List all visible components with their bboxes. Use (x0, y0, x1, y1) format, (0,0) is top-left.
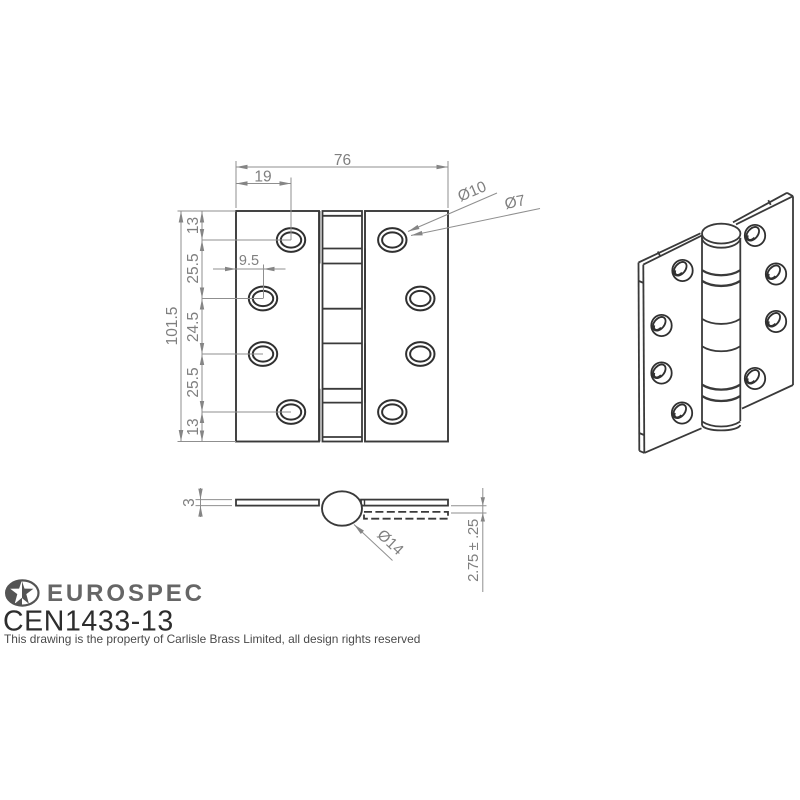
svg-text:Ø10: Ø10 (455, 178, 489, 205)
svg-text:9.5: 9.5 (239, 253, 259, 269)
svg-text:13: 13 (185, 418, 202, 435)
svg-text:3: 3 (181, 498, 198, 507)
svg-text:19: 19 (254, 169, 271, 186)
svg-text:EUROSPEC: EUROSPEC (47, 580, 205, 607)
svg-text:76: 76 (334, 152, 351, 169)
svg-text:101.5: 101.5 (164, 307, 181, 346)
svg-text:24.5: 24.5 (185, 312, 202, 342)
svg-text:This drawing is the property o: This drawing is the property of Carlisle… (4, 632, 420, 646)
svg-text:25.5: 25.5 (185, 253, 202, 283)
svg-text:Ø7: Ø7 (503, 192, 527, 213)
svg-text:Ø14: Ø14 (374, 526, 407, 559)
svg-text:2.75 ± .25: 2.75 ± .25 (465, 519, 482, 582)
svg-text:25.5: 25.5 (185, 367, 202, 397)
svg-text:13: 13 (185, 217, 202, 234)
